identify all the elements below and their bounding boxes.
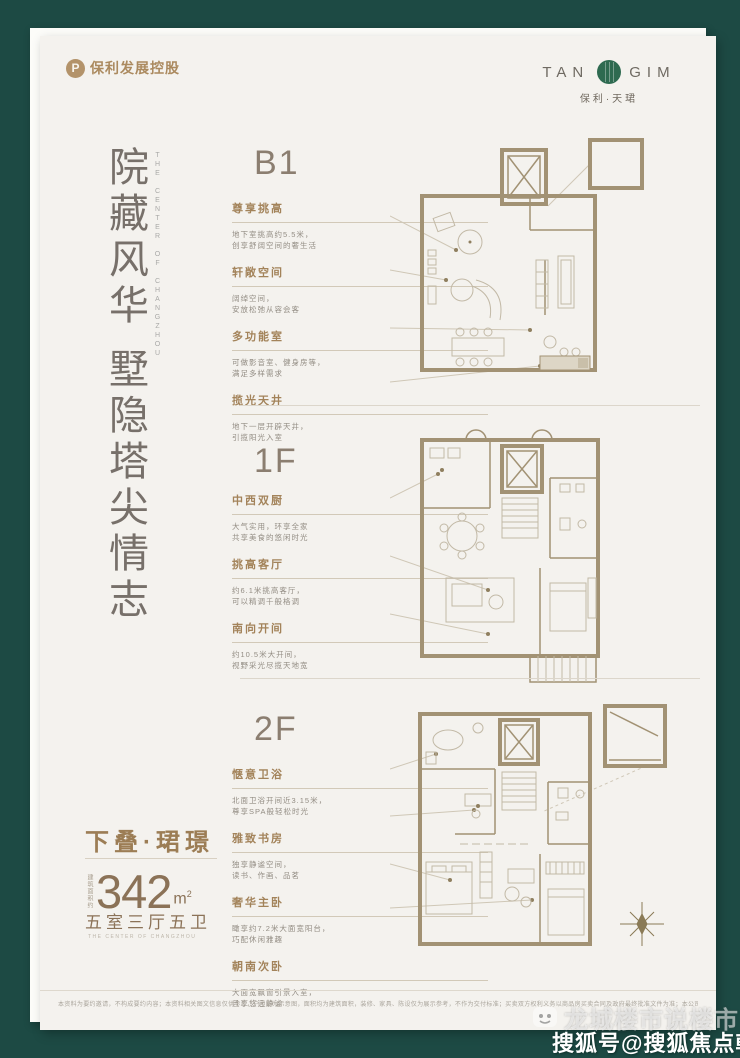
section-title-2f: 2F [254, 710, 298, 749]
unit-divider [85, 858, 217, 859]
section-title-1f: 1F [254, 442, 298, 481]
developer-logo: P 保利发展控股 [66, 58, 180, 78]
headline-part1: 院藏风华 [96, 146, 154, 330]
poly-logo-icon: P [66, 59, 85, 78]
area-unit: m2 [173, 889, 191, 908]
developer-name: 保利发展控股 [90, 58, 180, 78]
compass-icon [620, 902, 664, 946]
front-card: P 保利发展控股 TAN GIM 保利·天珺 院藏风华 墅隐塔尖情志 THE C… [40, 36, 716, 1030]
headline-part2: 墅隐塔尖情志 [96, 348, 154, 624]
headline-english: THE CENTER OF CHANGZHOU [154, 152, 161, 359]
section-title-b1: B1 [254, 144, 300, 183]
brand-circle-icon [597, 60, 621, 84]
poster-background: { "header": { "developer_mark": "P", "de… [0, 0, 740, 1057]
section-divider [240, 678, 700, 679]
brand-logo: TAN GIM 保利·天珺 [524, 60, 694, 105]
unit-rooms: 五室三厅五卫 [85, 908, 211, 933]
brand-cn: 保利·天珺 [524, 90, 694, 105]
unit-name: 下叠·珺璟 [85, 822, 214, 857]
unit-slogan-en: THE CENTER OF CHANGZHOU [88, 934, 196, 940]
brand-en-left: TAN [542, 64, 589, 81]
area-label: 建筑面积约 [85, 874, 94, 910]
floorplan-b1 [390, 130, 696, 400]
floorplan-2f [390, 694, 696, 984]
watermark-platform: 搜狐号@搜狐焦点朝阳站 [552, 1026, 740, 1058]
section-divider [240, 405, 700, 406]
floorplan-1f [390, 418, 696, 694]
brand-en-right: GIM [629, 64, 675, 81]
footer-divider [40, 990, 716, 991]
